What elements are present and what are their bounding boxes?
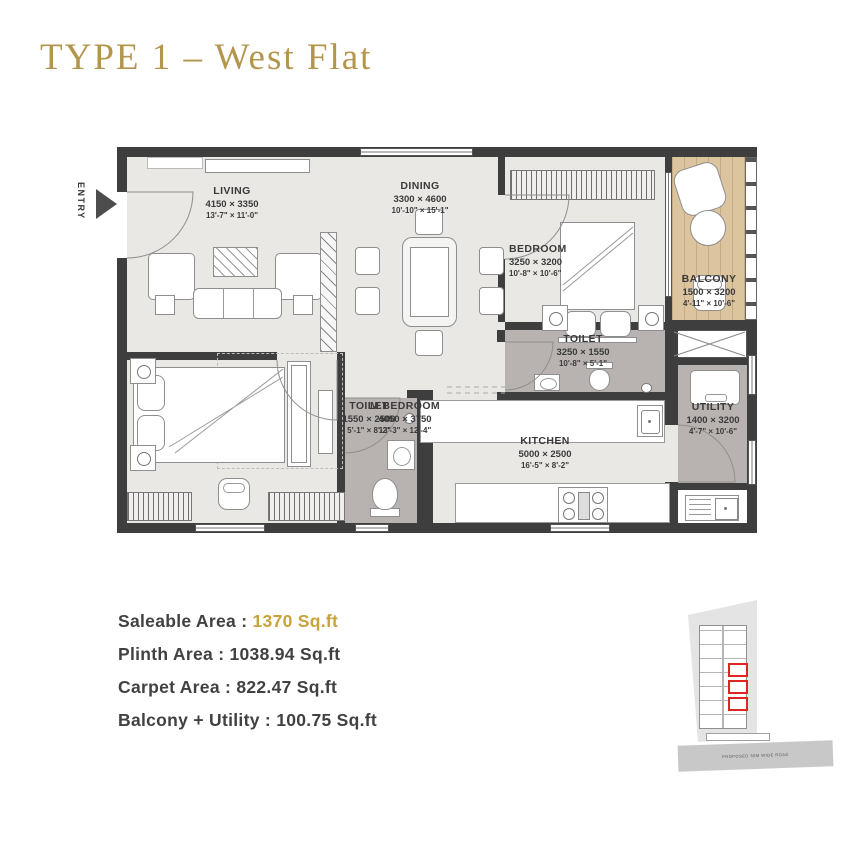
bedroom-label: BEDROOM 3250 × 3200 10'-8" × 10'-6" <box>509 243 589 279</box>
area-label: Balcony + Utility : <box>118 710 276 730</box>
utility-label: UTILITY 1400 × 3200 4'-7" × 10'-6" <box>675 401 751 437</box>
area-value: 100.75 Sq.ft <box>276 710 377 730</box>
area-value: 1370 Sq.ft <box>253 611 339 631</box>
open-boundary-dashes <box>447 387 505 393</box>
kitchen-label: KITCHEN 5000 × 2500 16'-5" × 8'-2" <box>495 435 595 471</box>
plinth-area-line: Plinth Area : 1038.94 Sq.ft <box>118 644 377 677</box>
highlighted-unit <box>728 680 748 694</box>
shaft-cross <box>674 332 745 356</box>
area-value: 1038.94 Sq.ft <box>229 644 340 664</box>
living-label: LIVING 4150 × 3350 13'-7" × 11'-0" <box>177 185 287 221</box>
building-footprint <box>699 625 747 729</box>
area-label: Carpet Area : <box>118 677 236 697</box>
balcony-label: BALCONY 1500 × 3200 4'-11" × 10'-6" <box>669 273 749 309</box>
saleable-area-line: Saleable Area : 1370 Sq.ft <box>118 611 377 644</box>
road-band: PROPOSED 30M WIDE ROAD <box>678 740 834 771</box>
page: TYPE 1 – West Flat ENTRY <box>0 0 841 841</box>
entry-label: ENTRY <box>76 182 86 230</box>
area-value: 822.47 Sq.ft <box>236 677 337 697</box>
area-label: Plinth Area : <box>118 644 229 664</box>
dining-label: DINING 3300 × 4600 10'-10" × 15'-1" <box>365 180 475 216</box>
highlighted-unit <box>728 663 748 677</box>
area-summary: Saleable Area : 1370 Sq.ft Plinth Area :… <box>118 611 377 743</box>
toilet-common-label: TOILET 3250 × 1550 10'-8" × 5'-1" <box>513 333 653 369</box>
area-label: Saleable Area : <box>118 611 253 631</box>
key-plan: PROPOSED 30M WIDE ROAD <box>672 592 837 777</box>
toilet-master-label: TOILET 1550 × 2500 5'-1" × 8'-2" <box>333 400 405 436</box>
highlighted-unit <box>728 697 748 711</box>
bed-fold-lines <box>169 369 283 453</box>
floor-plan: LIVING 4150 × 3350 13'-7" × 11'-0" DININ… <box>117 147 757 533</box>
balcony-utility-area-line: Balcony + Utility : 100.75 Sq.ft <box>118 710 377 743</box>
road-label-box <box>706 733 770 741</box>
entry-arrow-icon <box>96 189 117 219</box>
mbedroom-door-arc <box>277 360 337 420</box>
page-title: TYPE 1 – West Flat <box>40 36 372 79</box>
carpet-area-line: Carpet Area : 822.47 Sq.ft <box>118 677 377 710</box>
